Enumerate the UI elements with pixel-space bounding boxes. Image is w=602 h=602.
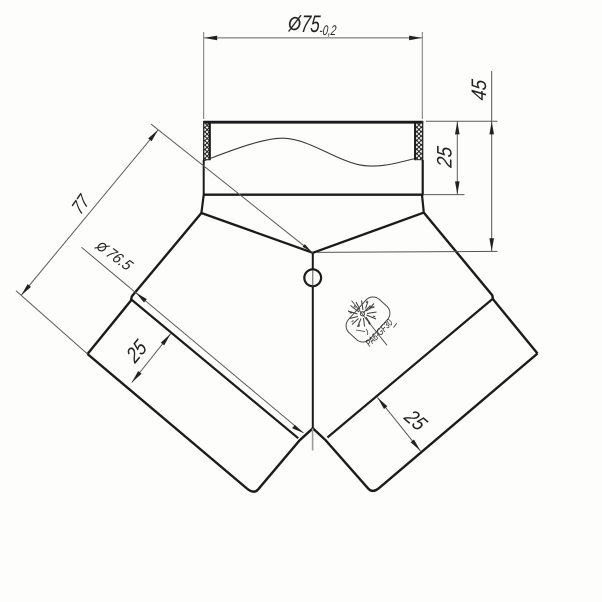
svg-text:25: 25 bbox=[434, 144, 457, 169]
svg-text:45: 45 bbox=[468, 77, 491, 101]
svg-text:75: 75 bbox=[300, 11, 322, 38]
svg-text:-0,2: -0,2 bbox=[319, 22, 338, 38]
